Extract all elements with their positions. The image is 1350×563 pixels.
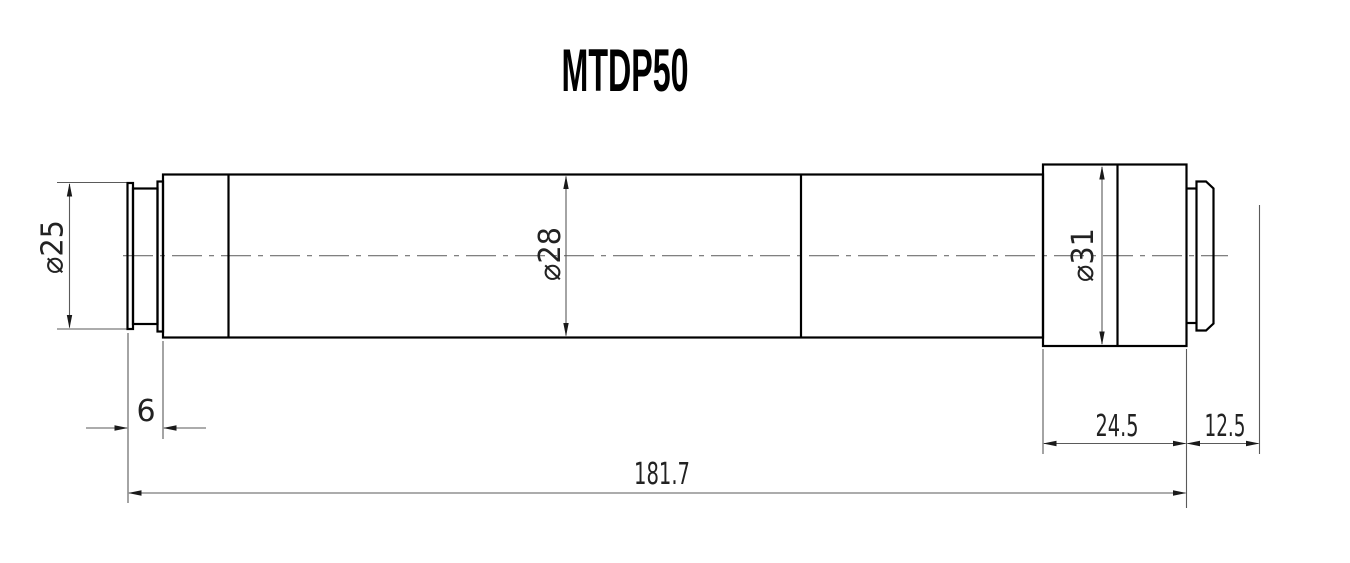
phi25-arrow-up-icon <box>67 183 72 197</box>
technical-drawing-page: MTDP50 <box>0 0 1350 563</box>
dimension-overall-length: 181.7 <box>128 457 1187 496</box>
dimension-rear-block-diameter: ⌀31 <box>1066 166 1105 345</box>
drawing-title: MTDP50 <box>562 37 689 104</box>
len1817-arrow-right-icon <box>1173 490 1187 495</box>
len6-arrow-right-icon <box>115 425 129 430</box>
lens-drawing-svg: MTDP50 <box>0 0 1350 563</box>
dimension-rear-block-length: 24.5 <box>1043 349 1187 508</box>
len125-arrow-left-icon <box>1187 441 1201 446</box>
len6-arrow-left-icon <box>163 425 177 430</box>
phi31-arrow-up-icon <box>1099 166 1104 180</box>
dimension-front-flange-length: 6 <box>86 333 206 503</box>
dimension-body-diameter: ⌀28 <box>533 176 569 337</box>
len1817-arrow-left-icon <box>128 490 142 495</box>
len245-arrow-left-icon <box>1043 441 1057 446</box>
len6-label: 6 <box>136 394 155 429</box>
len245-arrow-right-icon <box>1173 441 1187 446</box>
len245-label: 24.5 <box>1096 409 1139 444</box>
len1817-label: 181.7 <box>634 457 690 492</box>
phi25-label: ⌀25 <box>36 220 71 274</box>
phi31-label: ⌀31 <box>1066 228 1101 282</box>
dimension-front-diameter: ⌀25 <box>36 183 127 330</box>
len125-arrow-right-icon <box>1246 441 1260 446</box>
phi31-arrow-down-icon <box>1099 332 1104 346</box>
phi28-label: ⌀28 <box>533 227 568 281</box>
phi28-arrow-up-icon <box>563 176 568 190</box>
phi28-arrow-down-icon <box>563 323 568 337</box>
len125-label: 12.5 <box>1205 409 1246 444</box>
phi25-arrow-down-icon <box>67 315 72 329</box>
